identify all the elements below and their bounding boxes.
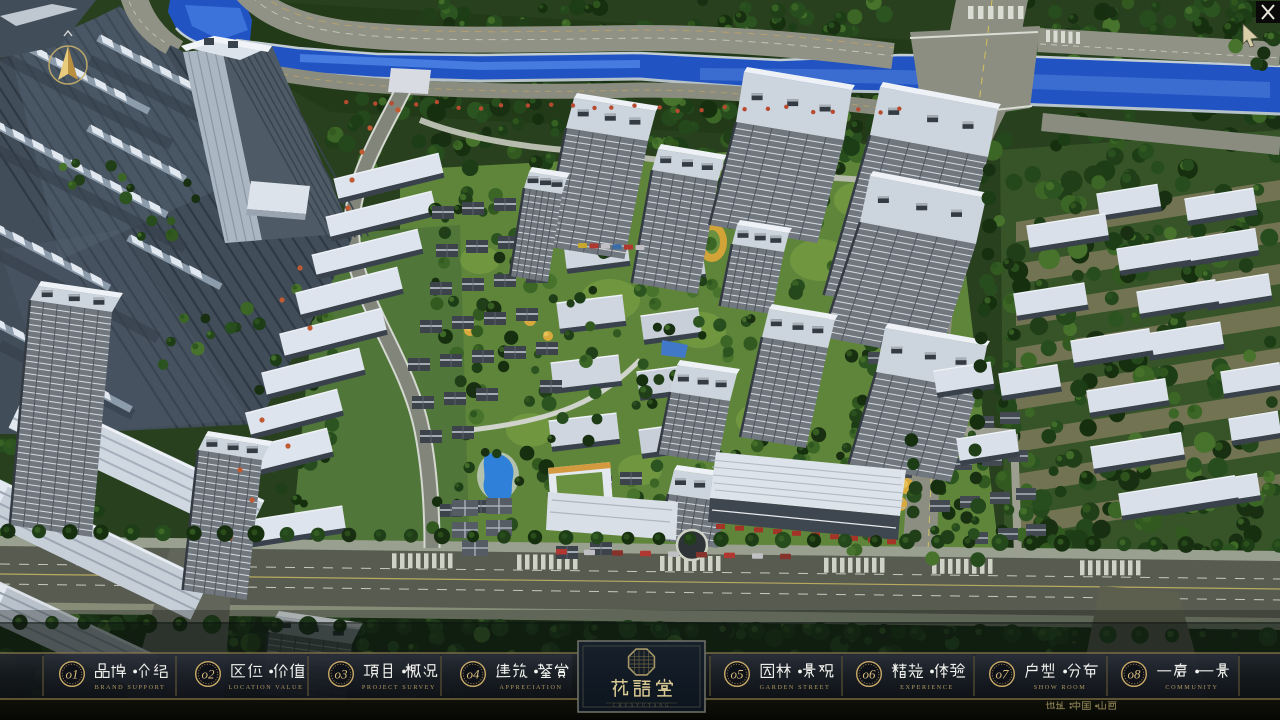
svg-text:o5: o5 — [731, 667, 745, 682]
svg-text:PROJECT SURVEY: PROJECT SURVEY — [362, 684, 436, 691]
svg-text:BRAND SUPPORT: BRAND SUPPORT — [95, 684, 166, 691]
svg-text:C H U A Y U T A N G: C H U A Y U T A N G — [613, 703, 670, 708]
svg-text:o6: o6 — [863, 667, 877, 682]
svg-text:SHOW ROOM: SHOW ROOM — [1034, 684, 1087, 691]
svg-text:o3: o3 — [335, 667, 349, 682]
svg-text:o7: o7 — [996, 667, 1010, 682]
svg-text:o2: o2 — [202, 667, 216, 682]
svg-text:o1: o1 — [66, 667, 79, 682]
svg-text:o4: o4 — [467, 667, 481, 682]
svg-text:LOCATION VALUE: LOCATION VALUE — [229, 684, 304, 691]
svg-text:GARDEN STREET: GARDEN STREET — [760, 684, 831, 691]
svg-text:COMMUNITY: COMMUNITY — [1165, 684, 1218, 691]
svg-text:o8: o8 — [1128, 667, 1142, 682]
svg-text:EXPERIENCE: EXPERIENCE — [900, 684, 954, 691]
svg-text:APPRECIATION: APPRECIATION — [499, 684, 562, 691]
